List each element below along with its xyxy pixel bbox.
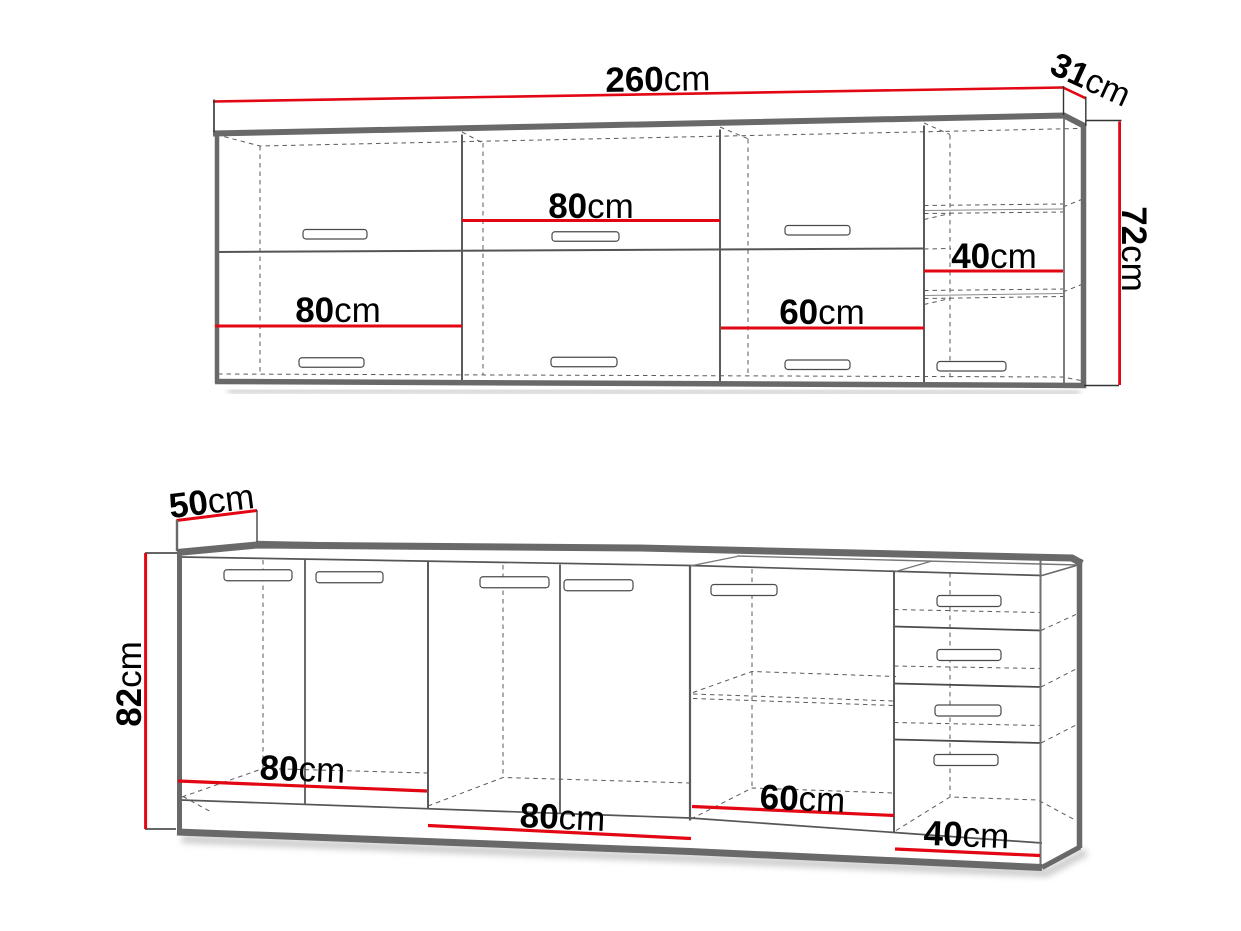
svg-text:82cm: 82cm (110, 641, 149, 727)
svg-text:60cm: 60cm (759, 778, 846, 821)
svg-text:260cm: 260cm (605, 59, 711, 100)
svg-text:40cm: 40cm (923, 814, 1010, 857)
svg-text:72cm: 72cm (1114, 206, 1153, 292)
svg-text:40cm: 40cm (951, 237, 1037, 276)
svg-text:80cm: 80cm (519, 796, 606, 839)
svg-text:80cm: 80cm (548, 187, 634, 226)
svg-text:60cm: 60cm (779, 293, 865, 332)
svg-text:80cm: 80cm (295, 291, 381, 330)
svg-text:50cm: 50cm (167, 477, 257, 526)
svg-text:80cm: 80cm (259, 748, 346, 790)
svg-text:31cm: 31cm (1045, 45, 1136, 114)
